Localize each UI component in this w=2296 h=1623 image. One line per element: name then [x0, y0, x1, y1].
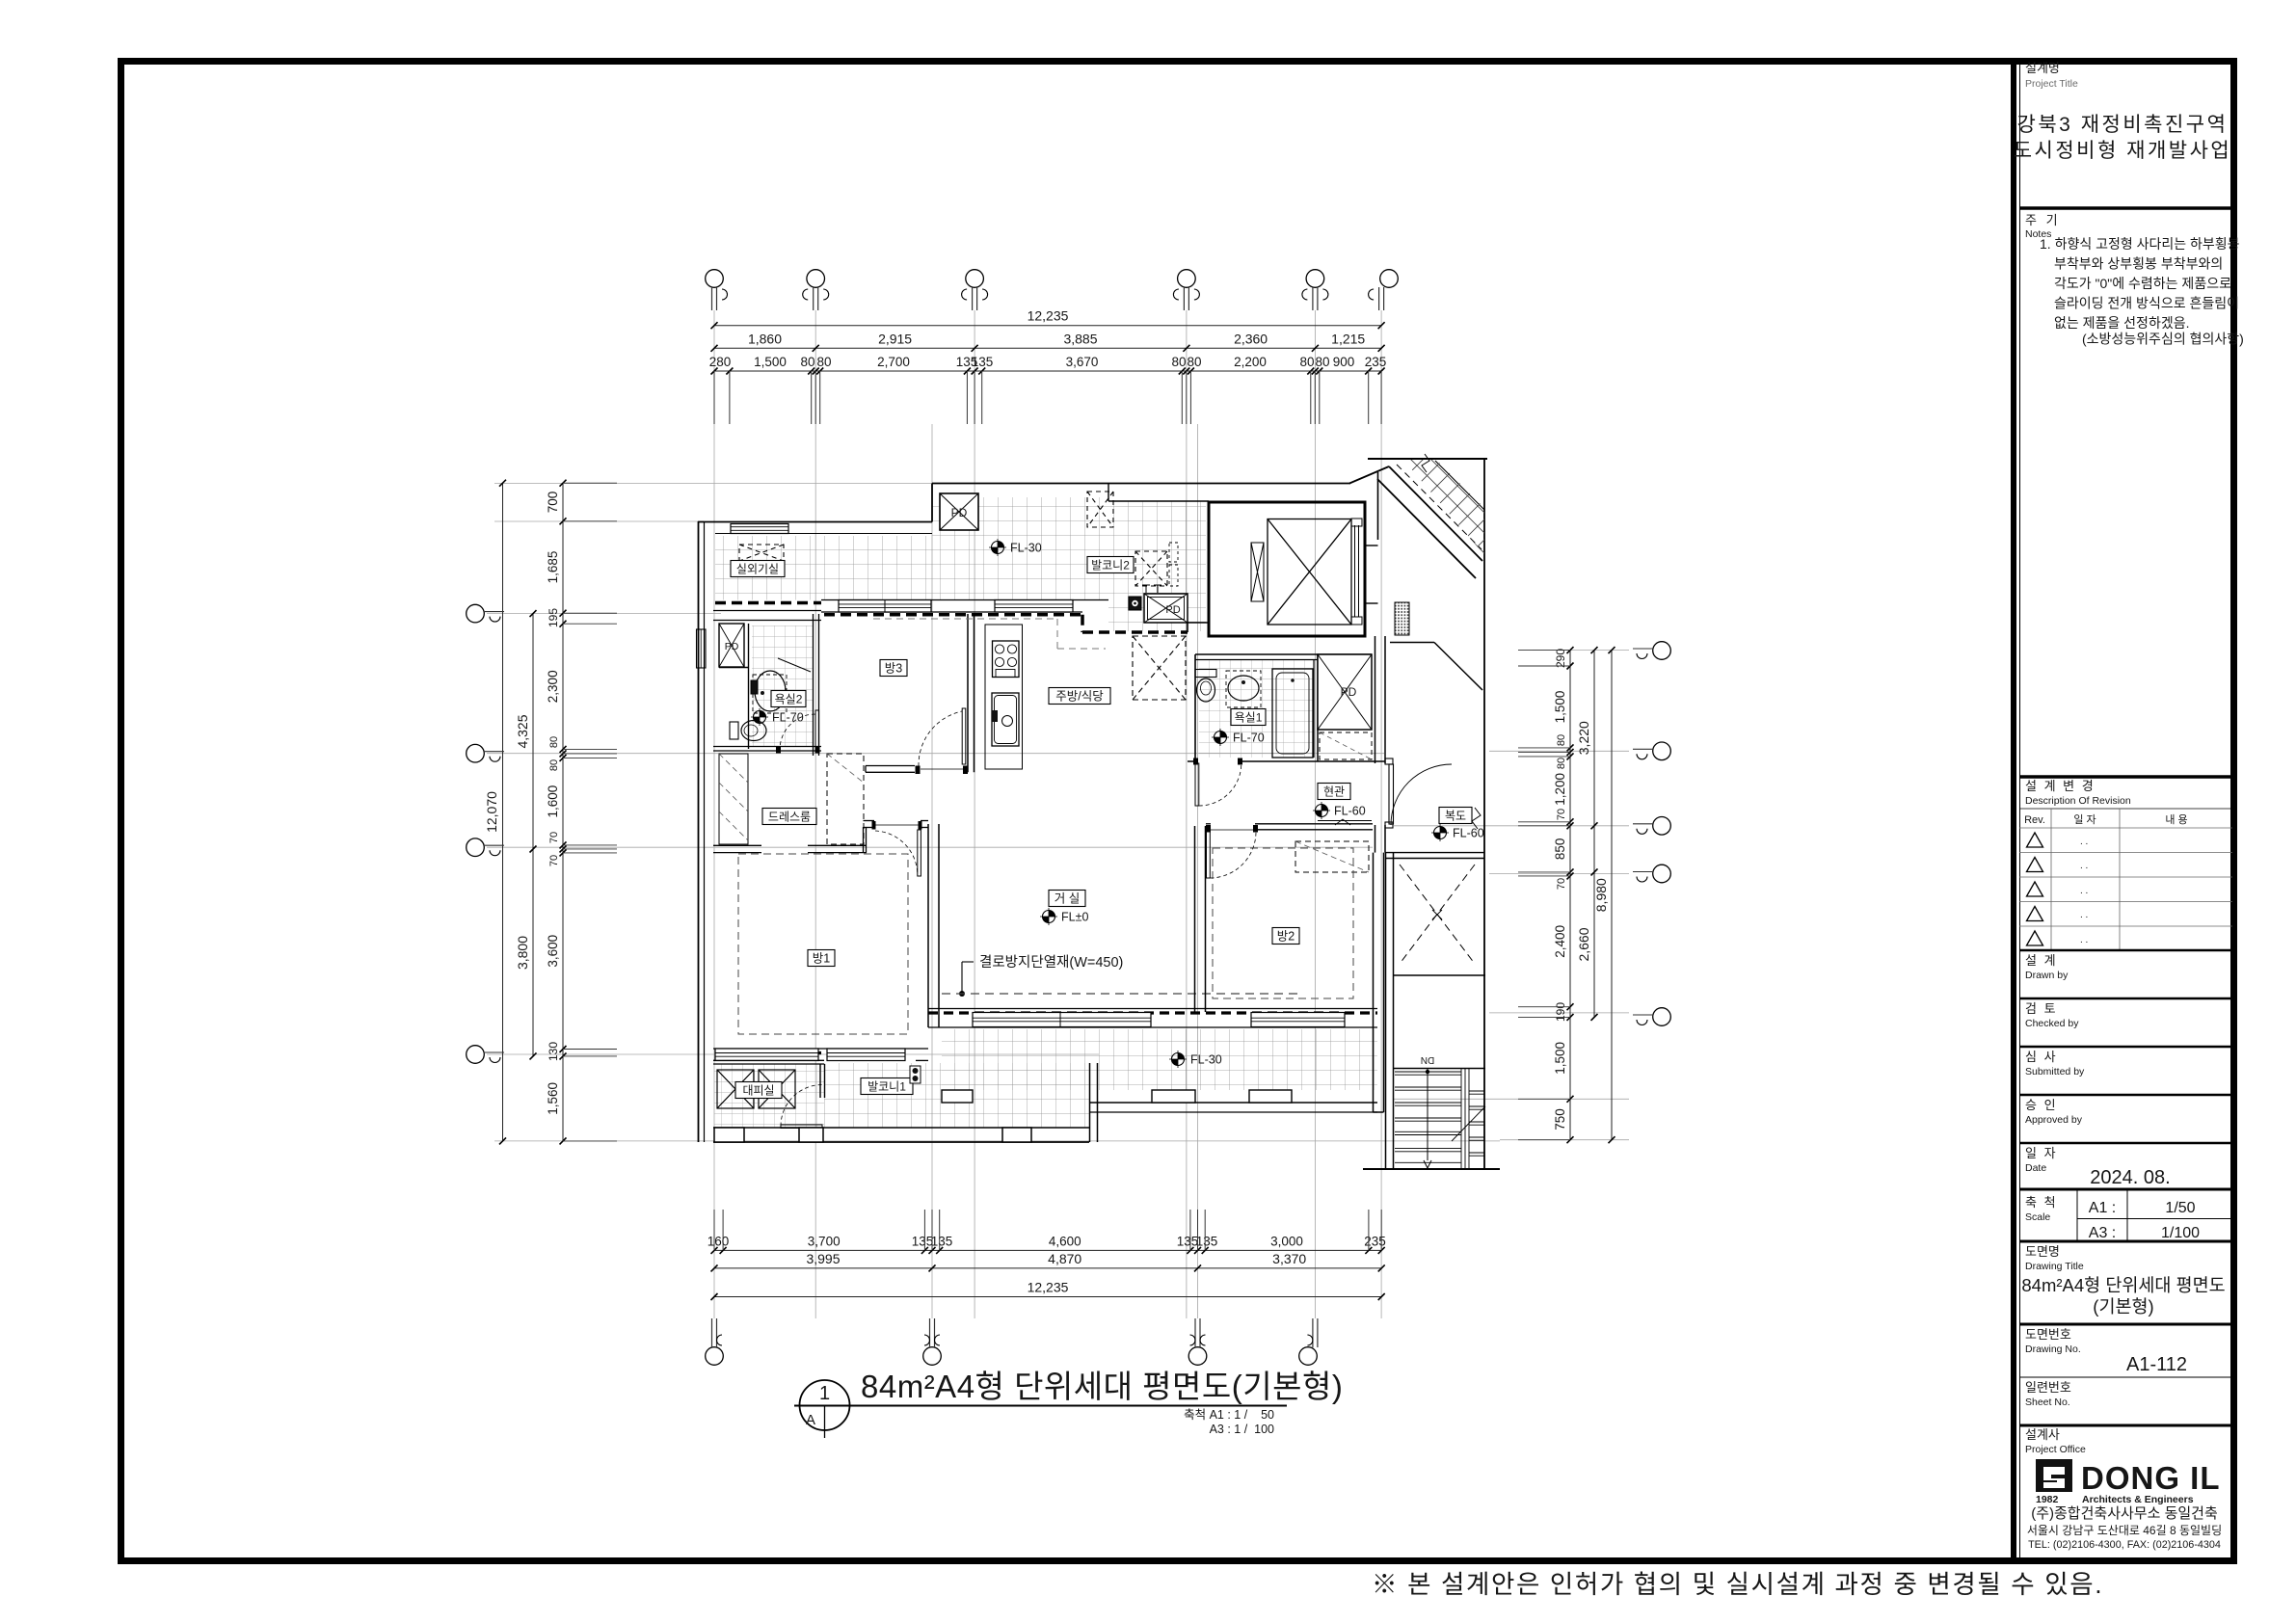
svg-text:주 기: 주 기 — [2025, 213, 2061, 227]
svg-text:190: 190 — [1554, 1002, 1567, 1022]
svg-text:(기본형): (기본형) — [2093, 1296, 2153, 1317]
svg-text:Submitted by: Submitted by — [2025, 1066, 2085, 1078]
svg-text:1: 1 — [819, 1383, 830, 1404]
svg-text:발코니1: 발코니1 — [868, 1080, 906, 1094]
svg-text:900: 900 — [1333, 355, 1355, 369]
svg-text:2,660: 2,660 — [1576, 927, 1591, 961]
svg-text:12,235: 12,235 — [1028, 1280, 1069, 1295]
svg-text:FL-60: FL-60 — [1334, 805, 1366, 818]
svg-text:FL-30: FL-30 — [1010, 542, 1042, 555]
svg-text:700: 700 — [546, 492, 560, 514]
svg-text:일 자: 일 자 — [2073, 812, 2096, 826]
svg-text:2,360: 2,360 — [1234, 331, 1268, 346]
svg-text:설계명: 설계명 — [2025, 61, 2060, 75]
svg-text:1,215: 1,215 — [1331, 331, 1365, 346]
svg-text:방2: 방2 — [1277, 930, 1295, 944]
svg-text:135: 135 — [972, 355, 994, 369]
svg-text:2,400: 2,400 — [1553, 925, 1567, 958]
svg-text:2,200: 2,200 — [1234, 355, 1267, 369]
svg-text:(소방성능위주심의 협의사항): (소방성능위주심의 협의사항) — [2082, 332, 2244, 347]
svg-text:80: 80 — [548, 759, 560, 771]
svg-text:일련번호: 일련번호 — [2025, 1380, 2071, 1395]
svg-text:A1 :: A1 : — [2089, 1200, 2116, 1216]
svg-text:. .: . . — [2080, 935, 2088, 945]
svg-text:80: 80 — [1171, 355, 1186, 369]
svg-text:850: 850 — [1553, 838, 1567, 861]
svg-text:현관: 현관 — [1323, 785, 1345, 799]
svg-text:설 계 변 경: 설 계 변 경 — [2025, 779, 2096, 793]
svg-text:750: 750 — [1553, 1108, 1567, 1131]
svg-text:드레스룸: 드레스룸 — [768, 811, 811, 824]
svg-text:발코니2: 발코니2 — [1091, 559, 1130, 572]
svg-text:1,685: 1,685 — [546, 551, 560, 584]
svg-text:1/50: 1/50 — [2165, 1200, 2195, 1216]
svg-text:설 계: 설 계 — [2025, 953, 2058, 968]
svg-text:8,980: 8,980 — [1593, 878, 1609, 912]
svg-text:135: 135 — [1196, 1234, 1218, 1248]
svg-text:4,600: 4,600 — [1049, 1234, 1081, 1248]
svg-text:PD: PD — [951, 506, 968, 519]
svg-text:Rev.: Rev. — [2024, 814, 2045, 826]
svg-text:3,600: 3,600 — [546, 935, 560, 968]
svg-text:없는 제품을 선정하겠음.: 없는 제품을 선정하겠음. — [2054, 315, 2189, 331]
svg-text:각도가 "0"에 수렴하는 제품으로: 각도가 "0"에 수렴하는 제품으로 — [2054, 276, 2231, 291]
svg-text:70: 70 — [1556, 878, 1567, 890]
svg-text:A: A — [806, 1412, 815, 1428]
svg-text:1982: 1982 — [2036, 1494, 2059, 1505]
svg-text:A1-112: A1-112 — [2126, 1354, 2187, 1375]
svg-text:Approved by: Approved by — [2025, 1114, 2083, 1126]
svg-text:12,235: 12,235 — [1028, 308, 1069, 324]
svg-text:설계사: 설계사 — [2025, 1427, 2060, 1442]
svg-text:FL-30: FL-30 — [1190, 1053, 1222, 1067]
svg-text:내 용: 내 용 — [2165, 813, 2187, 826]
svg-text:방3: 방3 — [885, 662, 903, 676]
svg-text:Date: Date — [2025, 1162, 2046, 1174]
svg-text:일 자: 일 자 — [2025, 1146, 2058, 1160]
svg-text:195: 195 — [547, 608, 560, 627]
svg-text:1,500: 1,500 — [1553, 691, 1567, 724]
svg-text:축척 A1 : 1 / 50: 축척 A1 : 1 / 50 — [1184, 1408, 1274, 1422]
svg-text:70: 70 — [548, 832, 560, 843]
svg-text:Sheet No.: Sheet No. — [2025, 1397, 2070, 1408]
svg-text:130: 130 — [547, 1042, 560, 1061]
svg-text:235: 235 — [1365, 355, 1387, 369]
svg-text:3,370: 3,370 — [1272, 1251, 1306, 1266]
svg-text:80: 80 — [1315, 355, 1329, 369]
svg-text:3,700: 3,700 — [808, 1234, 841, 1248]
svg-text:80: 80 — [1556, 758, 1567, 769]
svg-text:. .: . . — [2080, 910, 2088, 920]
svg-text:. .: . . — [2080, 861, 2088, 871]
svg-text:280: 280 — [709, 355, 732, 369]
svg-text:12,070: 12,070 — [484, 791, 499, 833]
svg-text:도시정비형 재개발사업: 도시정비형 재개발사업 — [2014, 140, 2232, 162]
svg-text:Project Office: Project Office — [2025, 1444, 2086, 1455]
svg-text:. .: . . — [2080, 886, 2088, 896]
svg-text:80: 80 — [1187, 355, 1201, 369]
svg-text:70: 70 — [548, 855, 560, 866]
svg-text:심 사: 심 사 — [2025, 1050, 2058, 1064]
svg-text:290: 290 — [1554, 649, 1567, 668]
svg-text:대피실: 대피실 — [742, 1084, 774, 1098]
svg-text:1,500: 1,500 — [754, 355, 787, 369]
svg-text:1. 하향식 고정형 사다리는 하부횡봉: 1. 하향식 고정형 사다리는 하부횡봉 — [2040, 236, 2240, 252]
svg-text:Project Title: Project Title — [2025, 78, 2078, 90]
svg-text:4,870: 4,870 — [1048, 1251, 1081, 1266]
svg-text:강북3 재정비촉진구역: 강북3 재정비촉진구역 — [2017, 114, 2229, 136]
svg-text:PD: PD — [1165, 604, 1180, 616]
svg-text:승 인: 승 인 — [2025, 1098, 2058, 1112]
svg-text:1,500: 1,500 — [1553, 1042, 1567, 1075]
svg-text:Drawing No.: Drawing No. — [2025, 1344, 2081, 1355]
svg-text:복도: 복도 — [1445, 810, 1466, 823]
svg-text:3,220: 3,220 — [1576, 721, 1591, 755]
svg-text:3,000: 3,000 — [1270, 1234, 1303, 1248]
svg-text:TEL: (02)2106-4300, FAX: (02)2: TEL: (02)2106-4300, FAX: (02)2106-4304 — [2028, 1539, 2221, 1551]
svg-text:2,700: 2,700 — [877, 355, 910, 369]
svg-text:80: 80 — [800, 355, 814, 369]
svg-text:70: 70 — [1556, 809, 1567, 820]
svg-text:부착부와 상부횡봉 부착부와의: 부착부와 상부횡봉 부착부와의 — [2054, 256, 2223, 272]
svg-text:DN: DN — [1421, 1054, 1434, 1065]
svg-text:A3 :: A3 : — [2089, 1225, 2116, 1241]
svg-text:Scale: Scale — [2025, 1211, 2050, 1223]
svg-text:Description Of Revision: Description Of Revision — [2025, 795, 2131, 807]
svg-text:FL-70: FL-70 — [772, 711, 804, 725]
svg-text:80: 80 — [548, 736, 560, 748]
svg-text:DONG IL: DONG IL — [2081, 1460, 2221, 1496]
svg-text:A3 : 1 / 100: A3 : 1 / 100 — [1210, 1423, 1274, 1436]
svg-text:3,670: 3,670 — [1066, 355, 1099, 369]
svg-text:160: 160 — [707, 1234, 730, 1248]
svg-text:도면명: 도면명 — [2025, 1244, 2060, 1259]
svg-text:※ 본 설계안은 인허가 협의 및 실시설계 과정 중 변경: ※ 본 설계안은 인허가 협의 및 실시설계 과정 중 변경될 수 있음. — [1372, 1570, 2103, 1599]
svg-text:PD: PD — [725, 641, 739, 652]
svg-text:1/100: 1/100 — [2161, 1225, 2200, 1241]
svg-text:PD: PD — [1341, 685, 1357, 699]
svg-text:FL±0: FL±0 — [1061, 911, 1088, 924]
svg-text:Drawing Title: Drawing Title — [2025, 1261, 2084, 1272]
svg-text:슬라이딩 전개 방식으로 흔들림이: 슬라이딩 전개 방식으로 흔들림이 — [2054, 296, 2239, 311]
svg-text:욕실2: 욕실2 — [775, 693, 803, 706]
svg-text:Drawn by: Drawn by — [2025, 970, 2069, 981]
svg-text:4,325: 4,325 — [515, 714, 530, 748]
svg-text:3,800: 3,800 — [515, 936, 530, 970]
svg-text:2,915: 2,915 — [878, 331, 912, 346]
svg-text:. .: . . — [2080, 837, 2088, 847]
svg-text:FL-60: FL-60 — [1453, 827, 1484, 840]
svg-text:욕실1: 욕실1 — [1235, 711, 1263, 725]
svg-text:Architects & Engineers: Architects & Engineers — [2082, 1494, 2194, 1505]
svg-text:3,885: 3,885 — [1063, 331, 1097, 346]
svg-text:1,860: 1,860 — [748, 331, 782, 346]
svg-text:방1: 방1 — [813, 952, 831, 966]
svg-text:서울시 강남구 도산대로 46길 8 동일빌딩: 서울시 강남구 도산대로 46길 8 동일빌딩 — [2027, 1524, 2222, 1537]
svg-text:3,995: 3,995 — [806, 1251, 840, 1266]
svg-text:80: 80 — [816, 355, 831, 369]
svg-text:축 척: 축 척 — [2025, 1195, 2058, 1210]
svg-text:2024. 08.: 2024. 08. — [2090, 1167, 2170, 1188]
svg-text:주방/식당: 주방/식당 — [1055, 690, 1104, 704]
svg-text:결로방지단열재(W=450): 결로방지단열재(W=450) — [979, 954, 1123, 971]
svg-text:84m²A4형 단위세대 평면도: 84m²A4형 단위세대 평면도 — [2021, 1275, 2225, 1295]
svg-text:거 실: 거 실 — [1055, 892, 1080, 906]
svg-text:(주)종합건축사사무소 동일건축: (주)종합건축사사무소 동일건축 — [2031, 1505, 2218, 1522]
svg-text:235: 235 — [1364, 1234, 1386, 1248]
svg-text:135: 135 — [931, 1234, 953, 1248]
svg-text:1,600: 1,600 — [546, 785, 560, 818]
svg-text:FL-70: FL-70 — [1233, 732, 1265, 745]
svg-text:1,560: 1,560 — [546, 1082, 560, 1115]
svg-text:84m²A4형 단위세대 평면도(기본형): 84m²A4형 단위세대 평면도(기본형) — [861, 1369, 1343, 1404]
svg-text:2,300: 2,300 — [546, 670, 560, 703]
svg-text:80: 80 — [1299, 355, 1314, 369]
svg-text:실외기실: 실외기실 — [736, 563, 779, 576]
svg-text:도면번호: 도면번호 — [2025, 1327, 2071, 1342]
svg-text:검 토: 검 토 — [2025, 1001, 2058, 1016]
svg-text:1,200: 1,200 — [1553, 773, 1567, 806]
svg-text:Checked by: Checked by — [2025, 1018, 2079, 1029]
svg-text:80: 80 — [1556, 734, 1567, 746]
